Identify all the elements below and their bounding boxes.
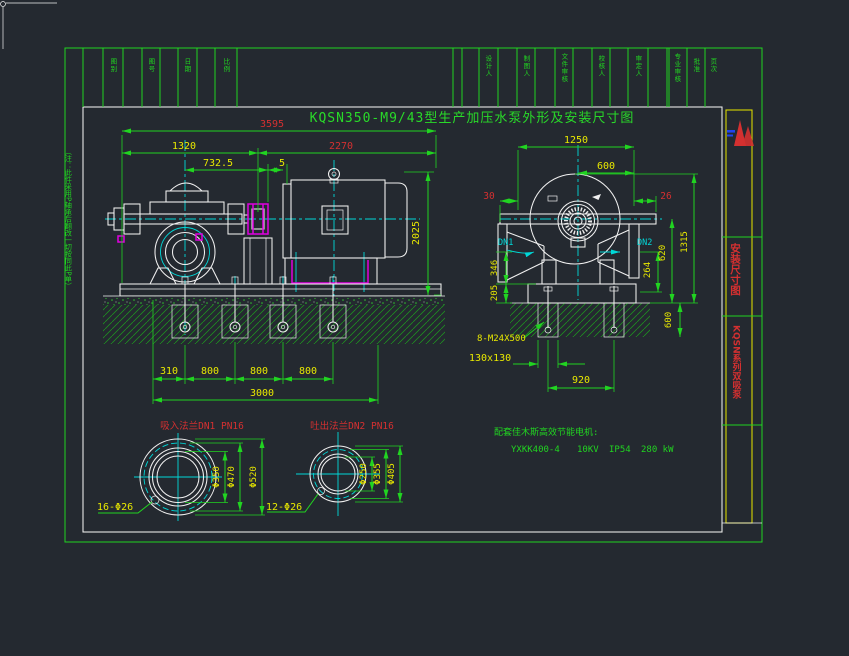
dim-foundation-depth: 600 (664, 312, 674, 328)
motor-note-voltage: 10KV (577, 445, 599, 455)
suction-flange-title: 吸入法兰DN1 PN16 (160, 420, 244, 432)
dim-discharge-offset: 600 (597, 161, 615, 172)
titleblock-cell: 文件审核 (560, 53, 567, 105)
dim-right-offset: 26 (660, 191, 672, 202)
titleblock-cell: 专业审核 (673, 53, 680, 105)
dim-suction-bolt-circle: Φ470 (227, 466, 237, 488)
dim-bolt-offset: 310 (160, 366, 178, 377)
label-dn2: DN2 (637, 238, 652, 248)
dim-base-height: 205 (490, 285, 500, 301)
dim-bolt-span: 920 (572, 375, 590, 386)
cad-drawing-canvas[interactable]: KQSN350-M9/43型生产加压水泵外形及安装尺寸图 (0, 0, 849, 656)
dim-bolt-pitch-a: 800 (201, 366, 219, 377)
suction-flange-detail: 吸入法兰DN1 PN16 Φ350 Φ470 Φ520 16-Φ26 (97, 420, 265, 521)
discharge-flange-detail: 吐出法兰DN2 PN16 Φ250 Φ355 Φ405 12-Φ26 (266, 420, 403, 516)
label-suction-holes: 16-Φ26 (97, 502, 133, 513)
titleblock-cell: 图别 (109, 58, 116, 104)
pump-outline (108, 183, 248, 284)
motor-note-model: YXKK400-4 (511, 445, 560, 455)
discharge-flange-title: 吐出法兰DN2 PN16 (310, 420, 394, 432)
label-discharge-holes: 12-Φ26 (266, 502, 302, 513)
dim-coupling-gap: 5 (279, 158, 285, 169)
dim-discharge-outer: Φ405 (387, 463, 397, 485)
dim-suction-height: 346 (490, 260, 500, 276)
panel-label-series: KQSN系列双吸泵 (730, 325, 739, 423)
titleblock-cell: 比例 (222, 58, 229, 104)
label-anchor-bolts: 8-M24X500 (477, 334, 526, 344)
end-view-centerlines (500, 145, 662, 300)
motor-note-protection: IP54 (609, 445, 631, 455)
titleblock-cell: 制图人 (522, 55, 529, 105)
dim-discharge-bore: Φ250 (359, 463, 369, 485)
motor-note-heading: 配套佳木斯高效节能电机: (494, 426, 598, 438)
titleblock-cell: 批准 (692, 58, 699, 104)
dim-suction-to-coupling: 732.5 (203, 158, 233, 169)
dim-overall-width: 1250 (564, 135, 588, 146)
dim-overall-height: 1315 (680, 231, 690, 253)
coupling (244, 204, 272, 284)
titleblock-cell: 校核人 (597, 55, 604, 105)
drawing-title: KQSN350-M9/43型生产加压水泵外形及安装尺寸图 (310, 111, 635, 126)
dim-height: 2025 (411, 221, 422, 245)
dim-bolt-pitch-b: 800 (250, 366, 268, 377)
label-dn1: DN1 (498, 238, 513, 248)
dim-left-offset: 30 (483, 191, 495, 202)
titleblock-cell: 日期 (183, 58, 190, 104)
motor-note-power: 280 kW (641, 445, 674, 455)
dim-bolt-pitch-c: 800 (299, 366, 317, 377)
front-view-dimensions: 3595 1320 2270 732.5 5 2025 310 800 800 … (122, 119, 441, 404)
dim-flange-height: 264 (643, 262, 653, 278)
panel-label-install: 安装尺寸图 (729, 243, 740, 315)
titleblock-cell: 设计人 (484, 55, 491, 105)
motor-note: 配套佳木斯高效节能电机: YXKK400-4 10KV IP54 280 kW (494, 426, 674, 455)
dim-suction-bore: Φ350 (212, 466, 222, 488)
titleblock-cell: 审定人 (634, 55, 641, 105)
titleblock-cell: 图号 (147, 58, 154, 104)
titleblock-cell: 页次 (709, 58, 716, 104)
dim-base-length: 3000 (250, 388, 274, 399)
base-and-foundation (103, 277, 445, 344)
corner-artifact (1, 2, 58, 50)
end-view-foundation (510, 286, 650, 337)
dim-discharge-bolt-circle: Φ355 (373, 463, 383, 485)
dim-motor-length: 2270 (329, 141, 353, 152)
dim-suction-outer: Φ520 (249, 466, 259, 488)
dim-center-height: 620 (658, 245, 668, 261)
label-pocket-size: 130x130 (469, 353, 511, 364)
margin-note: （注：此件采用P轴承后翻改一切按同此P单） (64, 148, 71, 358)
company-logo (727, 120, 754, 146)
dim-pump-length: 1320 (172, 141, 196, 152)
motor-outline (283, 169, 407, 285)
dim-total-length: 3595 (260, 119, 284, 130)
drawing-svg: KQSN350-M9/43型生产加压水泵外形及安装尺寸图 (0, 0, 849, 656)
